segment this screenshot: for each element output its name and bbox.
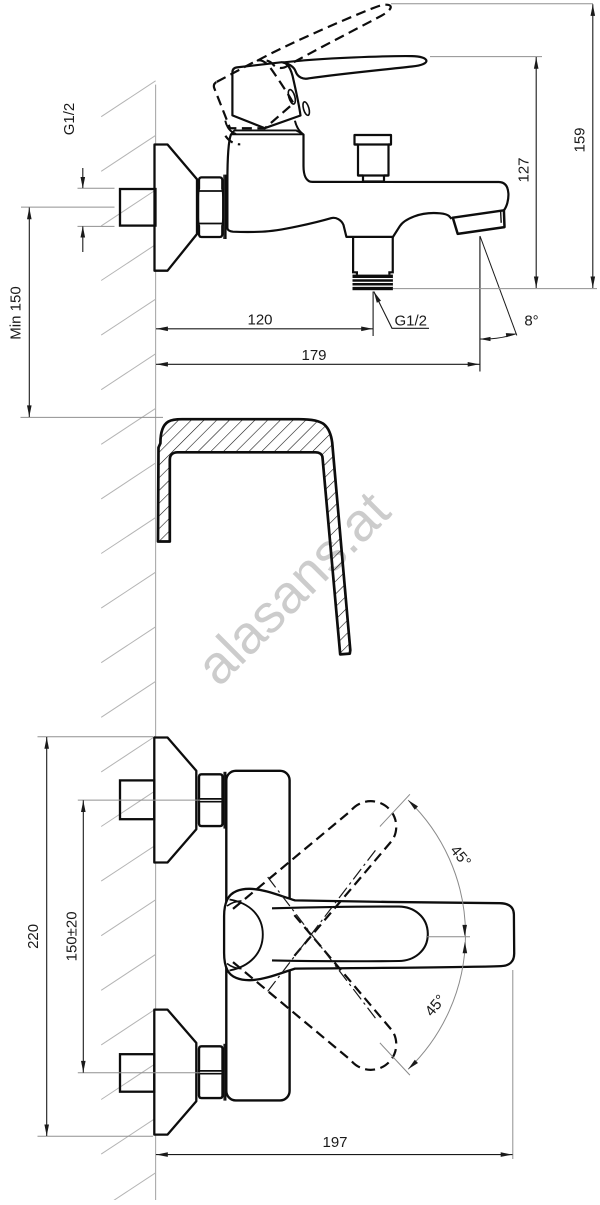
svg-text:Min 150: Min 150 [7, 286, 24, 339]
svg-text:179: 179 [301, 347, 326, 364]
svg-text:120: 120 [247, 312, 272, 329]
svg-text:220: 220 [25, 924, 42, 949]
svg-text:150±20: 150±20 [63, 911, 80, 961]
svg-text:G1/2: G1/2 [61, 103, 78, 136]
svg-text:G1/2: G1/2 [395, 313, 428, 330]
svg-text:197: 197 [322, 1134, 347, 1151]
svg-text:127: 127 [515, 157, 532, 182]
svg-text:159: 159 [571, 127, 588, 152]
svg-text:8°: 8° [524, 313, 538, 330]
